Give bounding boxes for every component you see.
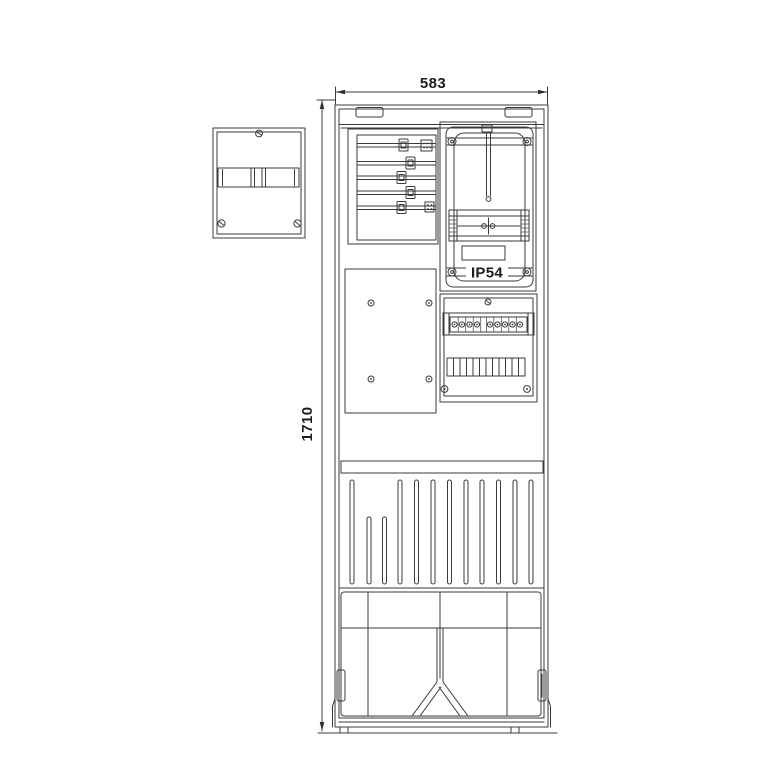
height-dimension-label: 1710 <box>299 407 316 442</box>
cabinet-technical-drawing: 583 1710 <box>0 0 768 768</box>
width-dimension: 583 <box>336 75 548 104</box>
screw-icon <box>441 386 530 393</box>
height-dimension: 1710 <box>299 100 335 731</box>
inspection-window <box>462 246 505 260</box>
screw-icon <box>485 299 491 305</box>
ground-line <box>318 727 557 733</box>
din-rail-module <box>348 129 438 244</box>
module-cover-band <box>218 168 299 187</box>
drawing-canvas: 583 1710 <box>0 0 768 768</box>
meter-window: IP54 <box>440 122 536 291</box>
small-enclosure <box>213 128 305 238</box>
arrowhead-down-icon <box>320 722 325 731</box>
cable-entry-base <box>337 592 546 722</box>
screw-icon <box>218 220 225 227</box>
arrowhead-right-icon <box>538 90 547 95</box>
blanking-strip <box>447 358 525 376</box>
screw-icon <box>368 300 432 382</box>
meter-top-bar <box>447 138 532 146</box>
arrowhead-up-icon <box>320 100 325 109</box>
arrowhead-left-icon <box>336 90 345 95</box>
sealing-slot <box>486 133 491 201</box>
screw-icon <box>294 220 301 227</box>
flange-band <box>341 461 543 473</box>
terminal-strip <box>443 313 534 335</box>
blank-cover-panel <box>345 269 436 413</box>
terminal-panel <box>440 294 537 402</box>
width-dimension-label: 583 <box>420 75 446 92</box>
main-cabinet: IP54 <box>318 105 557 733</box>
terminal-cover <box>449 210 529 241</box>
screw-icon <box>256 130 263 137</box>
ip54-label: IP54 <box>471 265 503 282</box>
ribbed-apron <box>339 480 544 588</box>
top-cap <box>339 108 544 129</box>
meter-bottom-bar: IP54 <box>447 264 532 282</box>
cabinet-shell <box>333 105 551 727</box>
